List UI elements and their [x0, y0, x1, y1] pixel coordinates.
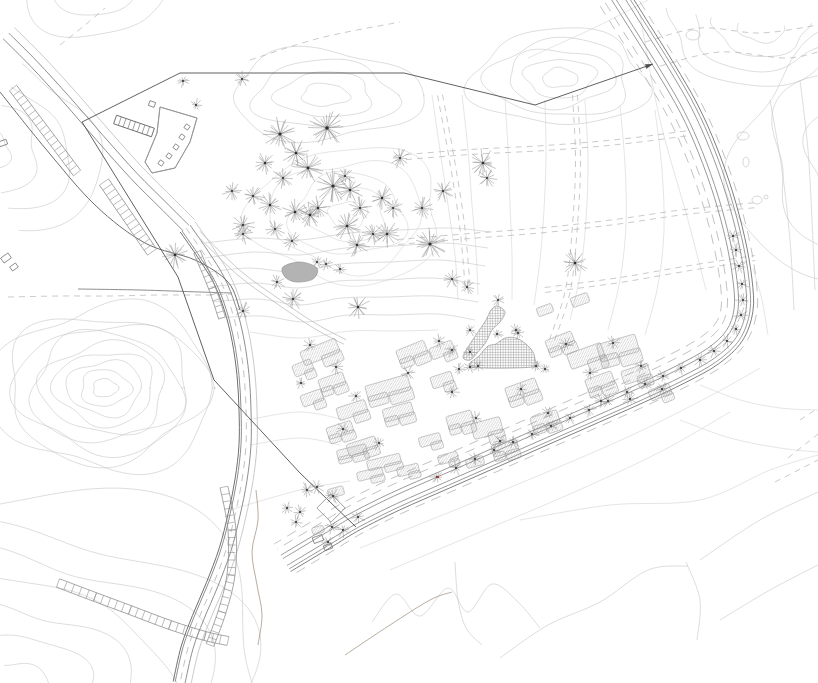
site-plan [0, 0, 818, 683]
red-marker [437, 476, 439, 478]
paper-background [0, 0, 818, 683]
site-plan-svg [0, 0, 818, 683]
pond [282, 262, 318, 282]
